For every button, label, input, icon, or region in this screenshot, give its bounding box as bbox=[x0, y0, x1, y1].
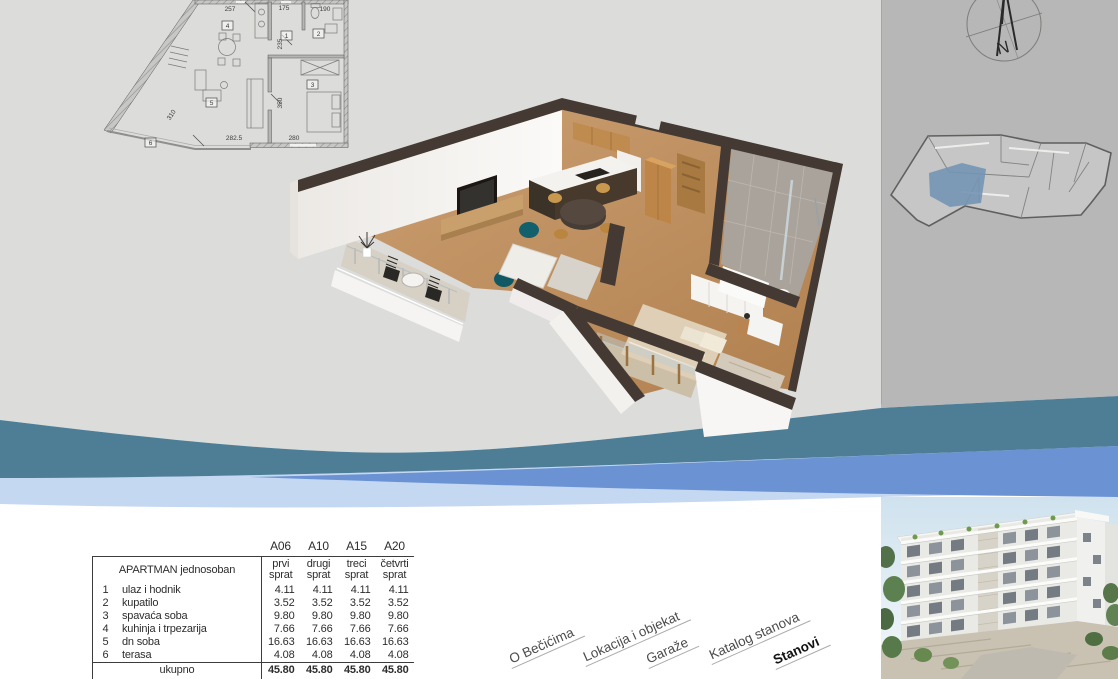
floor-label: drugisprat bbox=[300, 557, 338, 585]
table-row: 6terasa 4.08 4.08 4.08 4.08 bbox=[93, 649, 414, 663]
area-value: 16.63 bbox=[300, 636, 338, 649]
area-value: 16.63 bbox=[376, 636, 414, 649]
area-value: 7.66 bbox=[376, 623, 414, 636]
area-value: 4.08 bbox=[300, 649, 338, 663]
floor-header-row: APARTMAN jednosoban prvisprat drugisprat… bbox=[93, 557, 414, 585]
area-table: A06 A10 A15 A20 APARTMAN jednosoban prvi… bbox=[92, 540, 414, 679]
floor-label: četvrtisprat bbox=[376, 557, 414, 585]
unit-header-row: A06 A10 A15 A20 bbox=[93, 540, 414, 557]
room-name: kupatilo bbox=[122, 597, 158, 609]
area-value: 4.11 bbox=[338, 584, 376, 597]
svg-text:257: 257 bbox=[225, 6, 236, 13]
area-value: 3.52 bbox=[262, 597, 300, 610]
svg-text:282.5: 282.5 bbox=[226, 135, 243, 142]
svg-text:190: 190 bbox=[320, 6, 331, 13]
room-name: ulaz i hodnik bbox=[122, 584, 181, 596]
unit-label: A20 bbox=[376, 540, 414, 557]
total-value: 45.80 bbox=[262, 663, 300, 679]
svg-text:2: 2 bbox=[317, 31, 321, 38]
area-value: 7.66 bbox=[262, 623, 300, 636]
area-value: 4.11 bbox=[262, 584, 300, 597]
area-value: 16.63 bbox=[338, 636, 376, 649]
area-value: 3.52 bbox=[300, 597, 338, 610]
door-swings bbox=[193, 2, 292, 146]
svg-text:175: 175 bbox=[279, 5, 290, 12]
area-value: 9.80 bbox=[376, 610, 414, 623]
unit-label: A15 bbox=[338, 540, 376, 557]
apartment-3d-render bbox=[285, 80, 875, 450]
area-value: 4.08 bbox=[376, 649, 414, 663]
building-photo bbox=[881, 497, 1118, 679]
compass-icon: N bbox=[962, 0, 1052, 79]
total-value: 45.80 bbox=[338, 663, 376, 679]
unit-label: A10 bbox=[300, 540, 338, 557]
svg-text:5: 5 bbox=[210, 100, 214, 107]
total-value: 45.80 bbox=[300, 663, 338, 679]
room-name: spavaća soba bbox=[122, 610, 187, 622]
svg-text:6: 6 bbox=[149, 140, 153, 147]
balcony-table bbox=[402, 273, 424, 287]
area-value: 3.52 bbox=[338, 597, 376, 610]
table-row: 2kupatilo 3.52 3.52 3.52 3.52 bbox=[93, 597, 414, 610]
area-value: 9.80 bbox=[262, 610, 300, 623]
area-value: 4.08 bbox=[262, 649, 300, 663]
area-value: 9.80 bbox=[338, 610, 376, 623]
total-label: ukupno bbox=[93, 663, 262, 679]
room-name: dn soba bbox=[122, 636, 160, 648]
building-floor-overview bbox=[889, 132, 1115, 232]
area-value: 4.08 bbox=[338, 649, 376, 663]
entry-door bbox=[677, 153, 705, 214]
table-title: APARTMAN jednosoban bbox=[93, 557, 262, 585]
stairs-symbol bbox=[168, 46, 189, 68]
table-row: 3spavaća soba 9.80 9.80 9.80 9.80 bbox=[93, 610, 414, 623]
area-value: 3.52 bbox=[376, 597, 414, 610]
stone-column bbox=[978, 526, 998, 633]
room-name: terasa bbox=[122, 649, 151, 661]
svg-text:4: 4 bbox=[226, 23, 230, 30]
svg-text:1: 1 bbox=[285, 33, 289, 40]
floor-label: trecisprat bbox=[338, 557, 376, 585]
area-value: 9.80 bbox=[300, 610, 338, 623]
area-value: 16.63 bbox=[262, 636, 300, 649]
svg-text:350: 350 bbox=[277, 97, 284, 108]
floor-label: prvisprat bbox=[262, 557, 300, 585]
unit-label: A06 bbox=[262, 540, 300, 557]
svg-text:310: 310 bbox=[166, 108, 178, 121]
table-row: 4kuhinja i trpezarija 7.66 7.66 7.66 7.6… bbox=[93, 623, 414, 636]
table-row: 1ulaz i hodnik 4.11 4.11 4.11 4.11 bbox=[93, 584, 414, 597]
table-row: 5dn soba 16.63 16.63 16.63 16.63 bbox=[93, 636, 414, 649]
table-total-row: ukupno 45.80 45.80 45.80 45.80 bbox=[93, 663, 414, 679]
area-value: 4.11 bbox=[300, 584, 338, 597]
area-value: 7.66 bbox=[300, 623, 338, 636]
room-name: kuhinja i trpezarija bbox=[122, 623, 207, 635]
catalog-page: 257 175 190 235 350 310 282.5 280 1 2 3 … bbox=[0, 0, 1118, 679]
area-value: 4.11 bbox=[376, 584, 414, 597]
total-value: 45.80 bbox=[376, 663, 414, 679]
teal-armchair-1 bbox=[519, 222, 539, 238]
area-value: 7.66 bbox=[338, 623, 376, 636]
